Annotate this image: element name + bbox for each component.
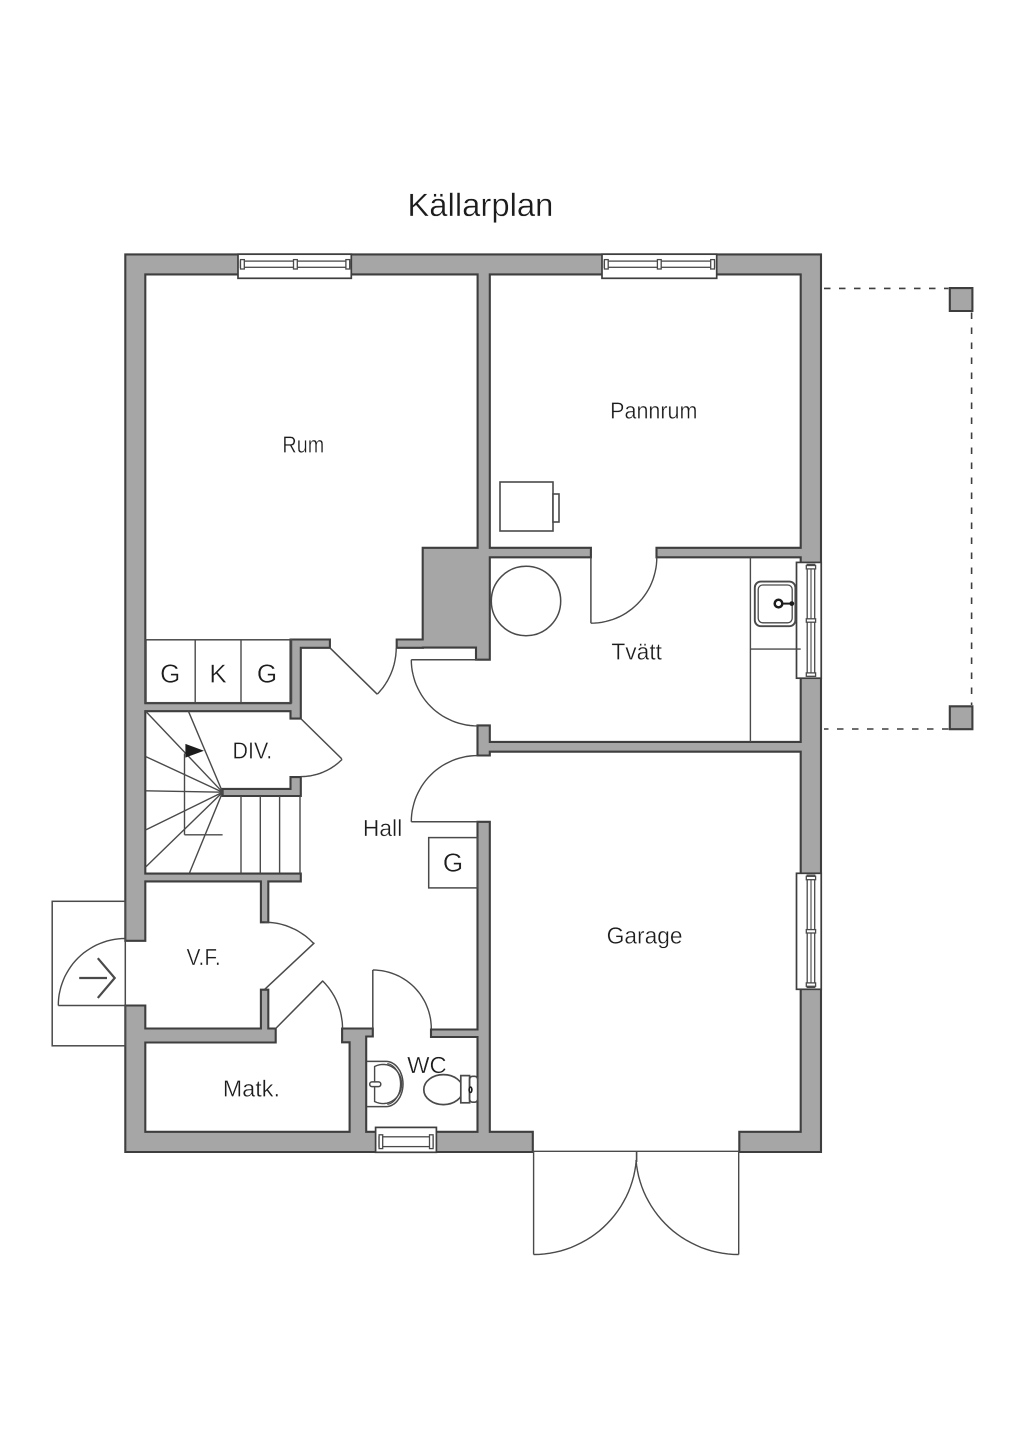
svg-text:K: K bbox=[209, 658, 227, 688]
svg-text:Källarplan: Källarplan bbox=[407, 187, 553, 223]
svg-text:Rum: Rum bbox=[282, 431, 324, 457]
svg-text:G: G bbox=[257, 658, 277, 688]
svg-text:Tvätt: Tvätt bbox=[611, 639, 662, 665]
svg-text:V.F.: V.F. bbox=[187, 944, 221, 970]
svg-text:Pannrum: Pannrum bbox=[610, 398, 697, 424]
svg-text:Matk.: Matk. bbox=[223, 1076, 280, 1102]
svg-text:Hall: Hall bbox=[363, 815, 402, 841]
svg-text:DIV.: DIV. bbox=[233, 738, 273, 764]
svg-text:G: G bbox=[160, 658, 180, 688]
svg-text:G: G bbox=[443, 848, 463, 878]
svg-text:WC: WC bbox=[407, 1052, 447, 1078]
svg-text:Garage: Garage bbox=[607, 922, 683, 948]
